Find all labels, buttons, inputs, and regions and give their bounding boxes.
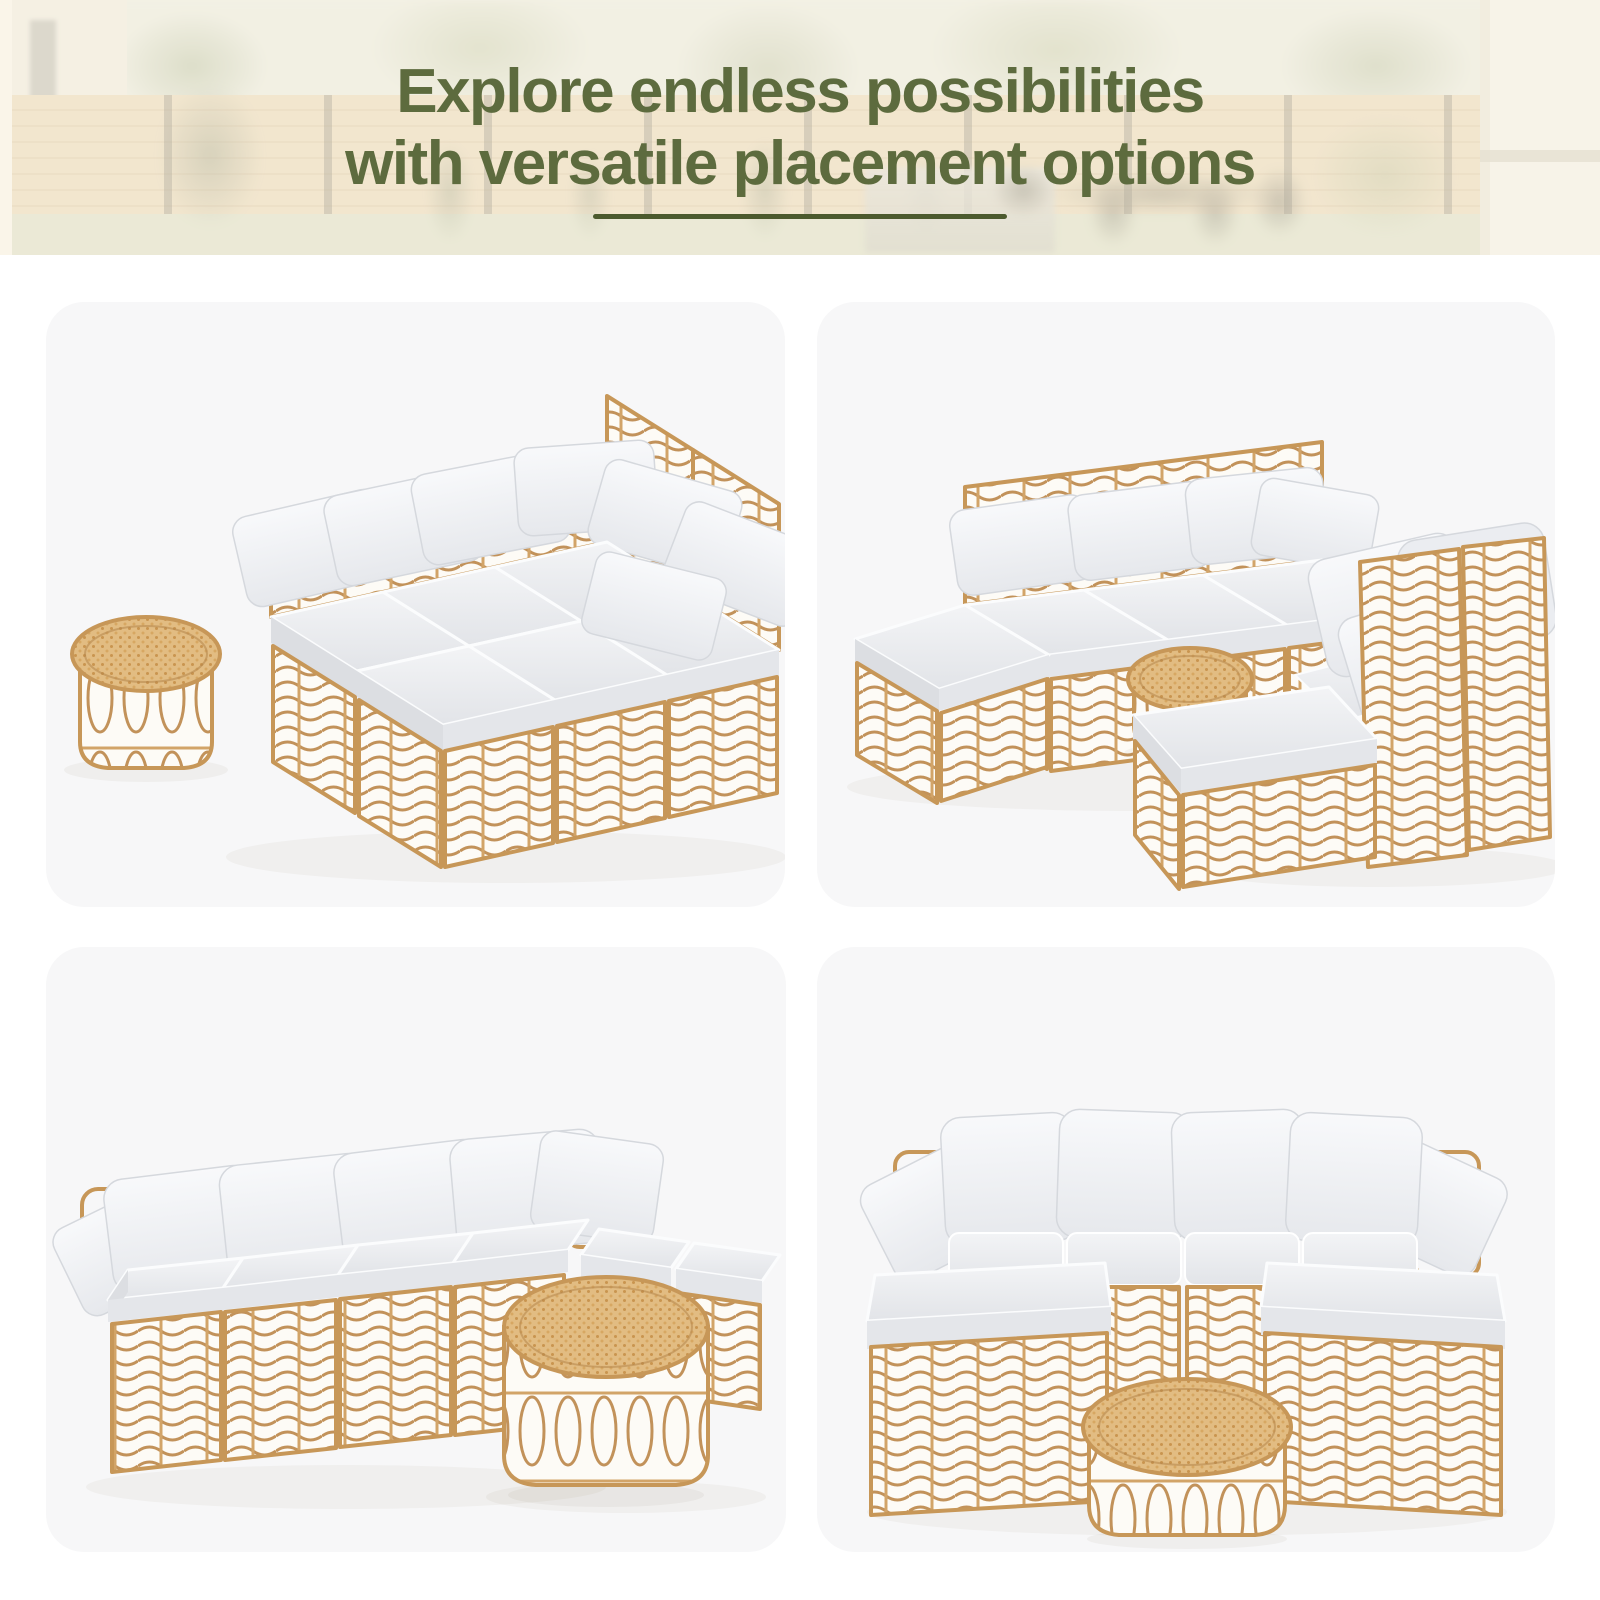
right-chaise	[1261, 1263, 1505, 1515]
title-underline	[593, 214, 1007, 219]
round-coffee-table	[504, 1277, 708, 1507]
page-title: Explore endless possibilities with versa…	[0, 56, 1600, 200]
layout-card-daybed	[46, 302, 785, 907]
chairs-ottoman	[1133, 687, 1377, 889]
daybed-layout-image	[46, 302, 785, 907]
layout-card-u-sectional	[817, 947, 1555, 1552]
round-coffee-table	[1083, 1379, 1291, 1549]
l-sectional-layout-image	[46, 947, 786, 1552]
promo-banner: Explore endless possibilities with versa…	[0, 0, 1600, 255]
title-line-2: with versatile placement options	[0, 128, 1600, 200]
round-side-table	[72, 617, 220, 768]
u-sectional-layout-image	[817, 947, 1555, 1552]
conversation-layout-image	[817, 302, 1555, 907]
layout-card-conversation	[817, 302, 1555, 907]
layout-card-l-sectional	[46, 947, 786, 1552]
left-chaise	[867, 1263, 1111, 1515]
title-line-1: Explore endless possibilities	[0, 56, 1600, 128]
